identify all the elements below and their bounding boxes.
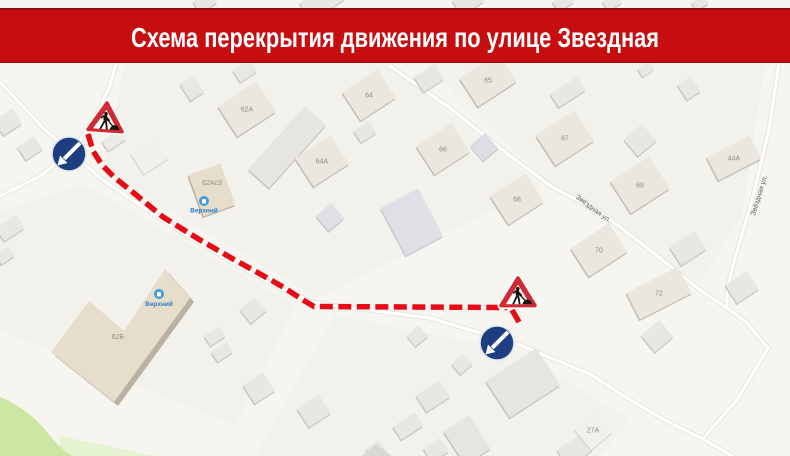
svg-text:64А: 64А [316,159,329,166]
svg-text:Схема перекрытия движения по у: Схема перекрытия движения по улице Звезд… [131,22,659,53]
svg-text:67: 67 [561,136,569,143]
svg-text:69: 69 [636,183,644,190]
svg-text:64: 64 [365,93,373,100]
svg-text:68: 68 [513,197,521,204]
svg-text:Верхний: Верхний [145,300,173,308]
svg-text:72: 72 [655,291,663,298]
svg-text:27А: 27А [587,428,600,435]
svg-text:62А: 62А [241,107,254,114]
svg-text:62Ас3: 62Ас3 [202,180,222,187]
svg-text:65: 65 [484,78,492,85]
svg-text:62Б: 62Б [112,334,125,341]
svg-text:66: 66 [439,147,447,154]
svg-text:Верхний: Верхний [190,207,218,215]
svg-text:44А: 44А [728,156,741,163]
svg-text:70: 70 [595,248,603,255]
